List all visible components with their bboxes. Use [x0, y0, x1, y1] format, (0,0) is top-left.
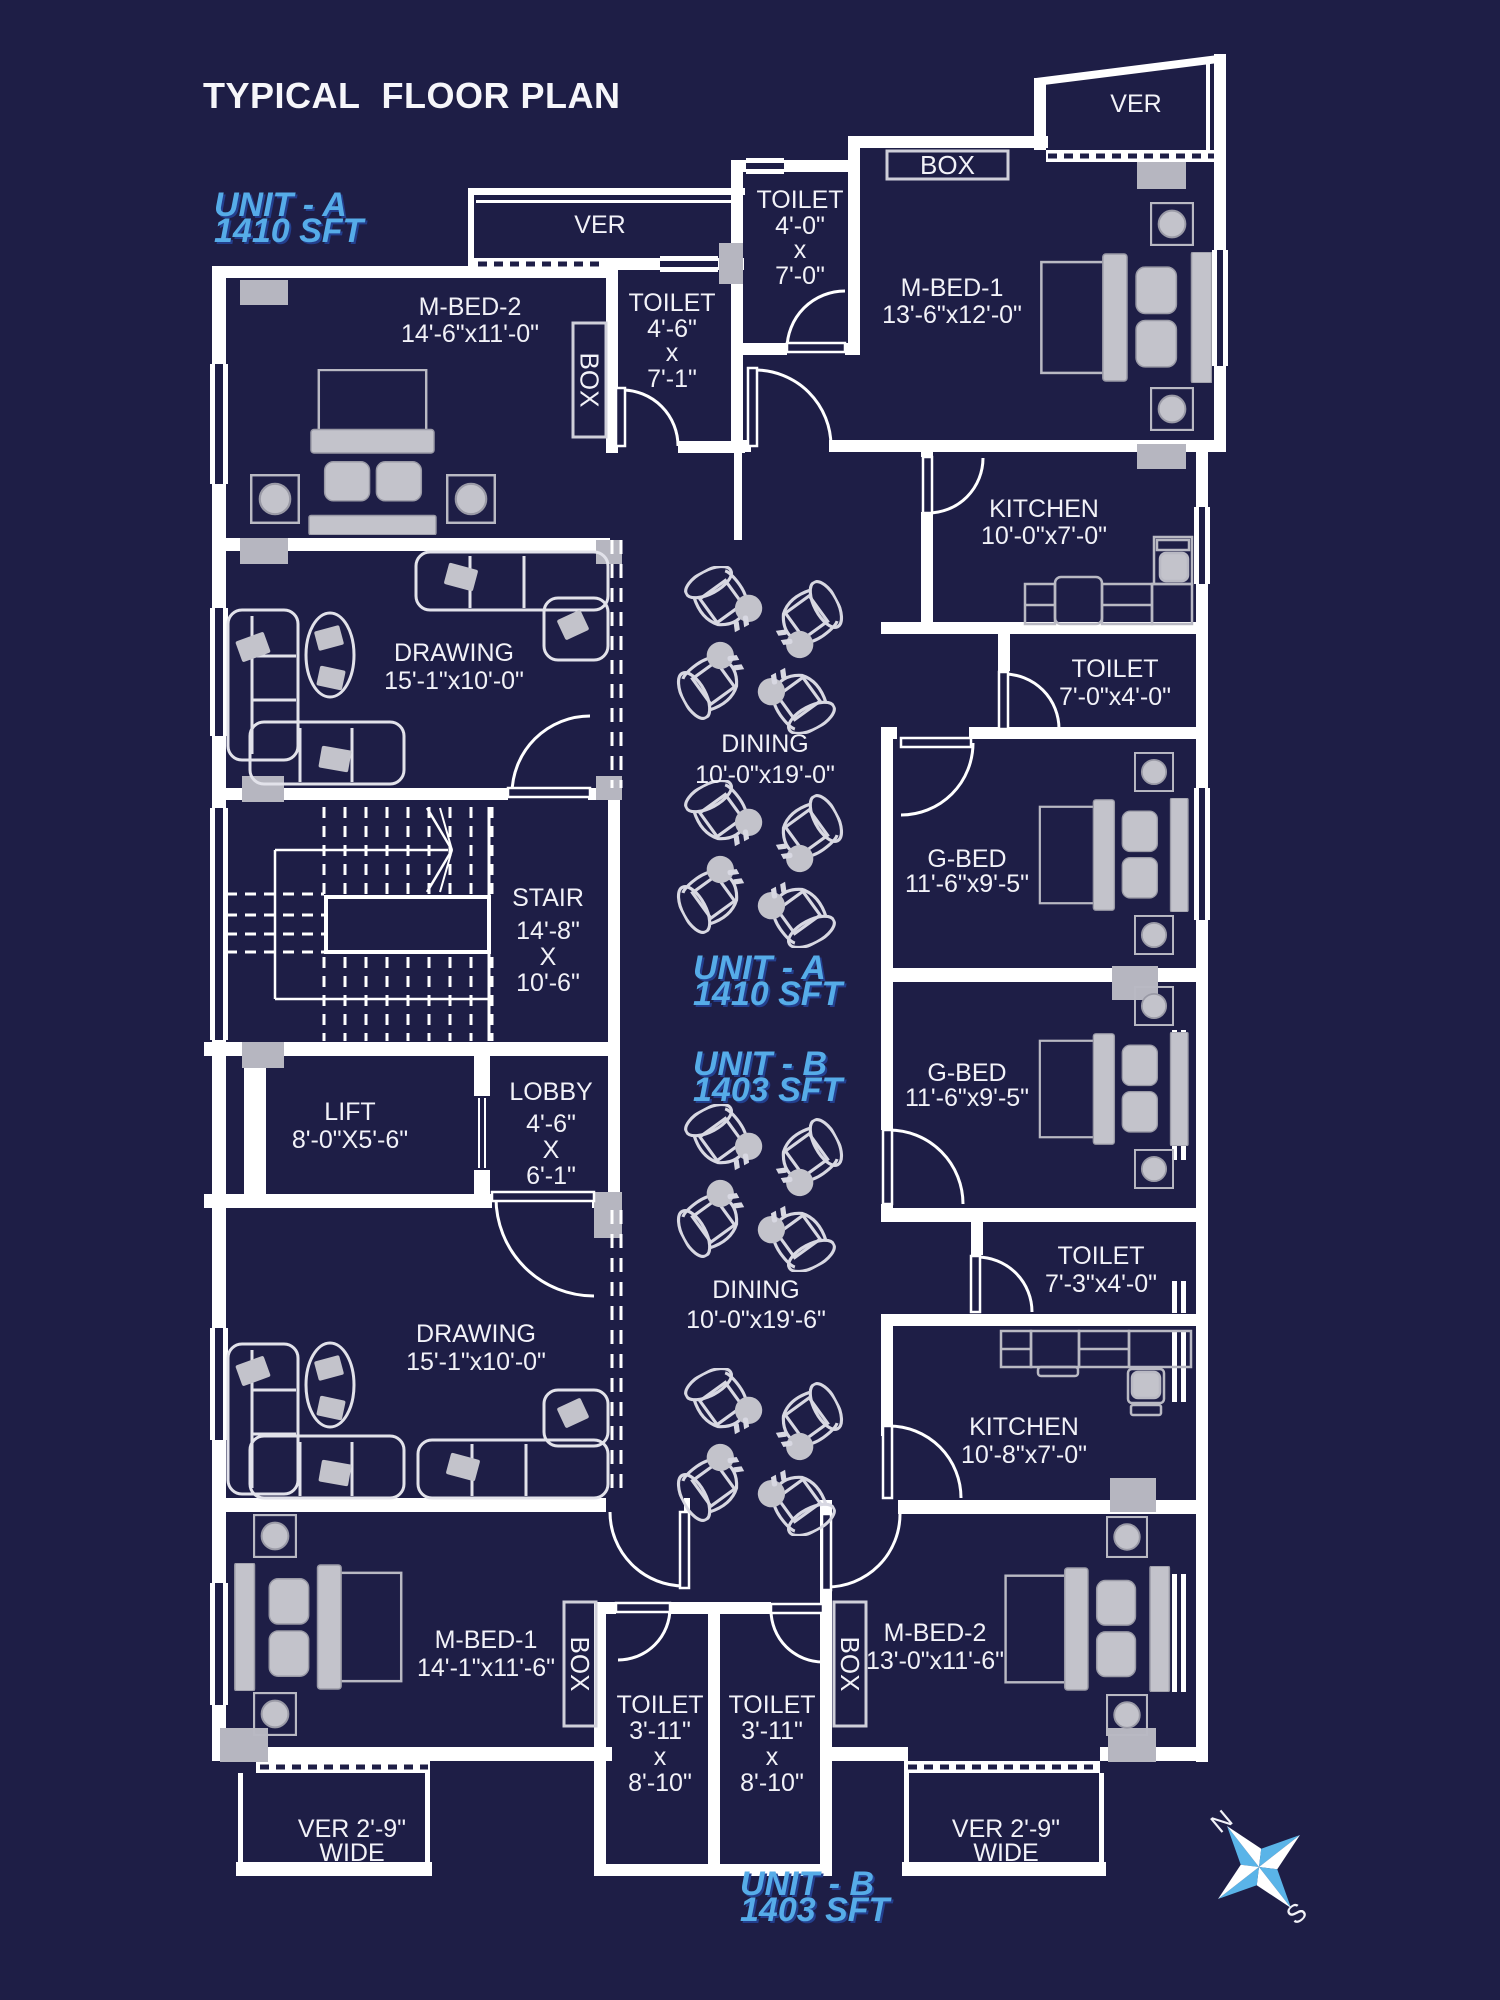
svg-text:LOBBY: LOBBY: [509, 1078, 593, 1106]
svg-text:DRAWING: DRAWING: [394, 639, 514, 667]
svg-text:11'-6"x9'-5": 11'-6"x9'-5": [905, 1084, 1029, 1112]
svg-text:DRAWING: DRAWING: [416, 1320, 536, 1348]
svg-text:M-BED-2: M-BED-2: [884, 1619, 987, 1647]
svg-text:15'-1"x10'-0": 15'-1"x10'-0": [406, 1348, 546, 1376]
svg-text:TOILET: TOILET: [756, 186, 843, 214]
svg-text:11'-6"x9'-5": 11'-6"x9'-5": [905, 870, 1029, 898]
svg-text:x: x: [666, 339, 679, 367]
svg-text:M-BED-2: M-BED-2: [419, 293, 522, 321]
svg-text:TOILET: TOILET: [628, 289, 715, 317]
svg-text:X: X: [543, 1136, 560, 1164]
svg-text:x: x: [794, 236, 807, 264]
svg-text:TOILET: TOILET: [1057, 1242, 1144, 1270]
svg-text:7'-1": 7'-1": [647, 365, 697, 393]
svg-text:15'-1"x10'-0": 15'-1"x10'-0": [384, 667, 524, 695]
svg-text:13'-0"x11'-6": 13'-0"x11'-6": [866, 1647, 1004, 1675]
svg-text:M-BED-1: M-BED-1: [435, 1626, 538, 1654]
svg-text:1410 SFT: 1410 SFT: [693, 975, 846, 1013]
svg-text:14'-6"x11'-0": 14'-6"x11'-0": [401, 320, 539, 348]
svg-text:DINING: DINING: [721, 730, 809, 758]
svg-text:14'-8": 14'-8": [516, 917, 580, 945]
svg-text:DINING: DINING: [712, 1276, 800, 1304]
svg-text:TOILET: TOILET: [1071, 655, 1158, 683]
svg-text:BOX: BOX: [575, 353, 605, 408]
svg-text:7'-0": 7'-0": [775, 262, 825, 290]
svg-text:BOX: BOX: [565, 1637, 595, 1692]
svg-text:1410 SFT: 1410 SFT: [214, 212, 367, 250]
svg-text:VER: VER: [1110, 90, 1161, 118]
svg-text:KITCHEN: KITCHEN: [989, 495, 1099, 523]
svg-text:1403 SFT: 1403 SFT: [693, 1071, 846, 1109]
svg-text:1403 SFT: 1403 SFT: [740, 1891, 893, 1929]
svg-text:TOILET: TOILET: [728, 1691, 815, 1719]
svg-text:3'-11": 3'-11": [629, 1717, 691, 1745]
svg-text:VER: VER: [574, 211, 625, 239]
svg-text:10'-8"x7'-0": 10'-8"x7'-0": [961, 1441, 1087, 1469]
svg-text:TOILET: TOILET: [616, 1691, 703, 1719]
svg-text:WIDE: WIDE: [319, 1839, 384, 1867]
svg-text:7'-0"x4'-0": 7'-0"x4'-0": [1059, 683, 1171, 711]
svg-text:8'-10": 8'-10": [740, 1769, 804, 1797]
svg-text:10'-0"x7'-0": 10'-0"x7'-0": [981, 522, 1107, 550]
svg-text:G-BED: G-BED: [927, 845, 1006, 873]
svg-text:WIDE: WIDE: [973, 1839, 1038, 1867]
svg-text:14'-1"x11'-6": 14'-1"x11'-6": [417, 1654, 555, 1682]
svg-text:8'-0"X5'-6": 8'-0"X5'-6": [292, 1126, 408, 1154]
svg-text:10'-6": 10'-6": [516, 969, 580, 997]
svg-text:X: X: [540, 943, 557, 971]
svg-text:G-BED: G-BED: [927, 1059, 1006, 1087]
svg-text:3'-11": 3'-11": [741, 1717, 803, 1745]
svg-text:10'-0"x19'-6": 10'-0"x19'-6": [686, 1306, 826, 1334]
svg-text:TYPICAL FLOOR PLAN: TYPICAL FLOOR PLAN: [203, 75, 621, 116]
svg-text:KITCHEN: KITCHEN: [969, 1413, 1079, 1441]
svg-text:6'-1": 6'-1": [526, 1162, 576, 1190]
svg-text:LIFT: LIFT: [324, 1098, 375, 1126]
svg-text:4'-6": 4'-6": [526, 1110, 576, 1138]
svg-text:STAIR: STAIR: [512, 884, 584, 912]
svg-text:13'-6"x12'-0": 13'-6"x12'-0": [882, 301, 1022, 329]
svg-text:8'-10": 8'-10": [628, 1769, 692, 1797]
svg-text:10'-0"x19'-0": 10'-0"x19'-0": [695, 761, 835, 789]
svg-text:7'-3"x4'-0": 7'-3"x4'-0": [1045, 1270, 1157, 1298]
svg-text:M-BED-1: M-BED-1: [901, 274, 1004, 302]
svg-text:BOX: BOX: [920, 150, 975, 180]
svg-text:x: x: [766, 1743, 779, 1771]
svg-text:x: x: [654, 1743, 667, 1771]
svg-text:BOX: BOX: [835, 1637, 865, 1692]
